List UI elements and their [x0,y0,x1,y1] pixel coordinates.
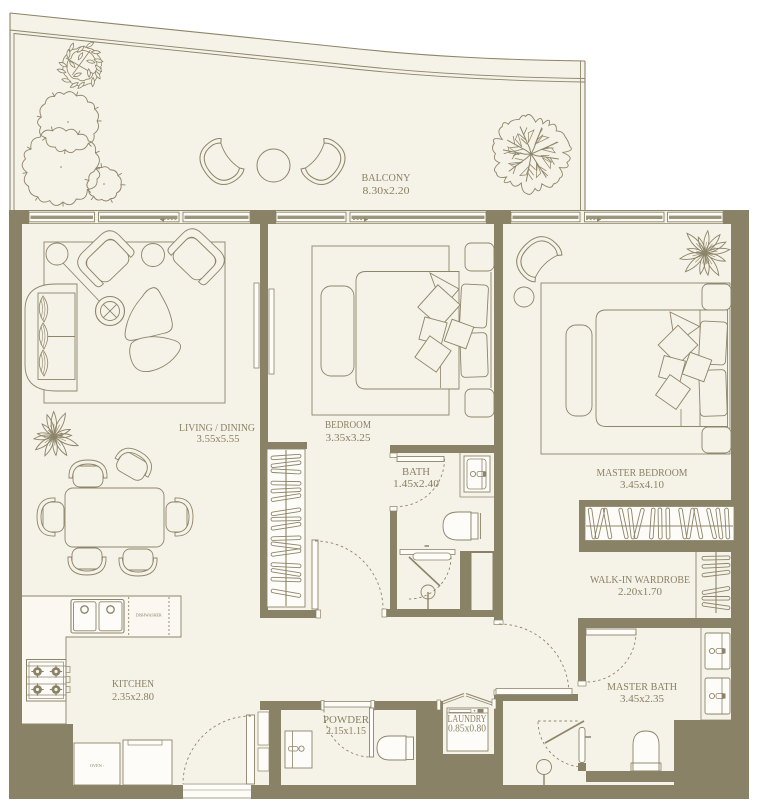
svg-text:DISHWASHER: DISHWASHER [136,613,162,618]
svg-text:3.35x3.25: 3.35x3.25 [326,433,371,444]
svg-text:3.45x4.10: 3.45x4.10 [620,480,664,491]
svg-text:KITCHEN: KITCHEN [112,678,154,690]
svg-text:WALK-IN WARDROBE: WALK-IN WARDROBE [590,574,690,586]
svg-text:MASTER BATH: MASTER BATH [607,681,677,693]
svg-text:MASTER BEDROOM: MASTER BEDROOM [597,467,688,479]
svg-text:3.55x5.55: 3.55x5.55 [197,434,240,445]
svg-text:2.35x2.80: 2.35x2.80 [112,692,154,703]
svg-text:3.45x2.35: 3.45x2.35 [620,694,664,705]
svg-text:LIVING / DINING: LIVING / DINING [179,422,255,434]
svg-text:0.85x0.80: 0.85x0.80 [448,724,486,735]
svg-text:8.30x2.20: 8.30x2.20 [363,186,410,197]
svg-text:1.45x2.40: 1.45x2.40 [393,479,439,490]
svg-text:BEDROOM: BEDROOM [325,419,371,431]
svg-text:2.20x1.70: 2.20x1.70 [618,587,662,598]
svg-text:2.15x1.15: 2.15x1.15 [326,726,366,737]
svg-text:BALCONY: BALCONY [362,172,411,184]
svg-text:BATH: BATH [402,466,430,478]
svg-text:POWDER: POWDER [323,714,370,726]
svg-text:OVEN :: OVEN : [90,763,104,768]
